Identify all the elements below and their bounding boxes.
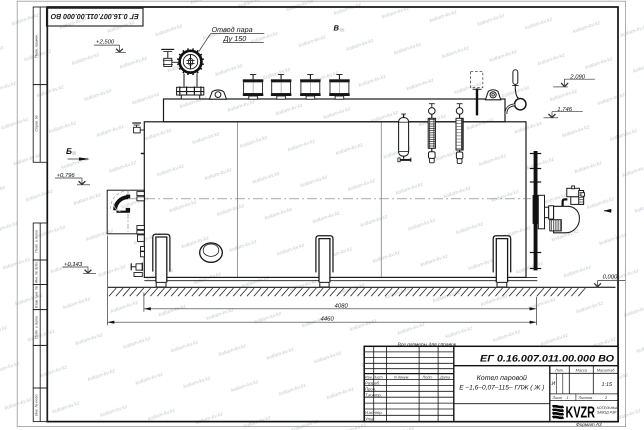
svg-text:Масса: Масса — [576, 368, 587, 372]
svg-text:Пров.: Пров. — [365, 387, 376, 392]
svg-text:Подп.: Подп. — [423, 375, 433, 379]
svg-text:Листов: Листов — [578, 396, 593, 400]
svg-text:Т.контр.: Т.контр. — [365, 392, 382, 397]
svg-text:+2,500: +2,500 — [96, 39, 115, 46]
svg-text:Справ. №: Справ. № — [35, 115, 39, 131]
svg-text:ЕГ 0.16.007.011.00.000 ВО: ЕГ 0.16.007.011.00.000 ВО — [480, 352, 615, 363]
svg-text:1:15: 1:15 — [602, 382, 613, 388]
svg-text:Перв. примен.: Перв. примен. — [35, 34, 39, 58]
svg-text:4080: 4080 — [335, 302, 349, 309]
svg-text:0,000: 0,000 — [603, 274, 618, 281]
svg-text:Подп. и дата: Подп. и дата — [35, 230, 39, 253]
svg-text:Утв.: Утв. — [365, 416, 375, 421]
svg-text:В: В — [334, 24, 340, 33]
svg-text:Инв. № подл.: Инв. № подл. — [35, 394, 39, 416]
svg-text:Лит.: Лит. — [554, 368, 564, 372]
svg-text:KVZR: KVZR — [566, 404, 596, 421]
svg-text:Б: Б — [66, 146, 72, 156]
svg-text:4460: 4460 — [321, 316, 335, 323]
svg-text:ЗАВОД РЗР: ЗАВОД РЗР — [597, 411, 617, 415]
svg-text:Лист: Лист — [552, 396, 563, 400]
svg-text:Разраб.: Разраб. — [365, 381, 380, 386]
svg-text:1: 1 — [567, 396, 569, 400]
svg-text:ЕГ 0.16.007.011.00.000 ВО: ЕГ 0.16.007.011.00.000 ВО — [51, 12, 139, 21]
svg-text:Формат А3: Формат А3 — [576, 422, 602, 427]
svg-text:Е –1,6–0,07–115– ГЛЖ ( Ж ): Е –1,6–0,07–115– ГЛЖ ( Ж ) — [459, 384, 544, 391]
svg-text:Изм Лист: Изм Лист — [365, 375, 383, 379]
svg-text:КОТЕЛЬНЫЙ: КОТЕЛЬНЫЙ — [597, 405, 620, 410]
svg-text:Котел паровой: Котел паровой — [477, 374, 527, 382]
svg-text:И: И — [552, 381, 556, 387]
svg-text:Подп. и дата: Подп. и дата — [35, 316, 39, 339]
svg-text:Дата: Дата — [439, 375, 450, 379]
svg-text:Масштаб: Масштаб — [597, 368, 616, 372]
svg-text:Н.контр.: Н.контр. — [365, 410, 383, 415]
svg-text:N докум.: N докум. — [394, 375, 409, 379]
svg-text:Взам. инв. №: Взам. инв. № — [35, 286, 39, 308]
svg-text:Инв. № дубл.: Инв. № дубл. — [35, 261, 39, 283]
svg-text:Отвод пара: Отвод пара — [212, 25, 253, 34]
svg-text:Ду 150: Ду 150 — [223, 34, 247, 43]
